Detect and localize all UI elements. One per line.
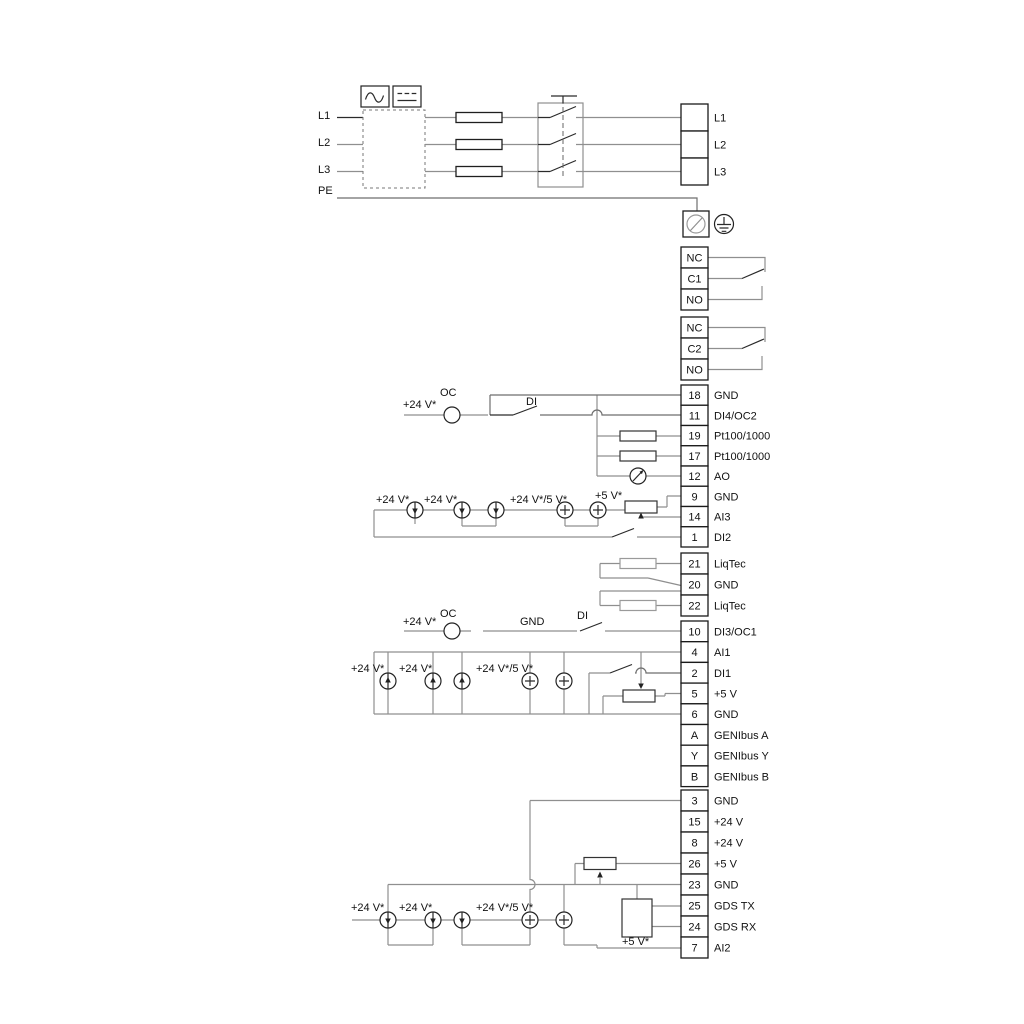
wires-to-mains-terminals <box>576 118 681 172</box>
wire-pe <box>337 198 697 211</box>
terminal-pin: NO <box>686 365 703 377</box>
analog-meter-icon <box>630 468 646 484</box>
terminal-label: +5 V <box>714 859 738 871</box>
terminal-label: +5 V <box>714 688 738 700</box>
terminal-pin: NC <box>687 253 703 265</box>
terminal-label: DI4/OC2 <box>714 410 757 422</box>
di4-oc2-circuit <box>404 395 681 484</box>
power-line-label-l2: L2 <box>318 138 330 149</box>
terminal-label: Pt100/1000 <box>714 431 770 443</box>
terminal-pin: 25 <box>688 901 700 913</box>
terminal-label: GDS TX <box>714 901 755 913</box>
terminal-pin: 18 <box>688 390 700 402</box>
di1-switch-contact <box>610 665 632 674</box>
main-switch-icon <box>538 96 583 187</box>
relay1-contact <box>708 258 765 300</box>
terminal-label: AI3 <box>714 512 731 524</box>
di-switch-contact <box>580 623 602 632</box>
wire-l2-l3-leads <box>337 145 363 172</box>
supply-label: +24 V* <box>351 664 384 675</box>
terminal-pin: 11 <box>689 410 700 422</box>
terminal-label: GND <box>714 580 739 592</box>
open-collector-icon <box>444 407 460 423</box>
terminal-L1 <box>681 104 708 131</box>
terminal-pin: 10 <box>688 626 700 638</box>
terminal-label: LiqTec <box>714 601 746 613</box>
terminal-pin: 12 <box>688 471 700 483</box>
terminal-label: GND <box>714 796 739 808</box>
terminal-pin: 26 <box>688 859 700 871</box>
terminal-strip-strip1: 18GND11DI4/OC219Pt100/100017Pt100/100012… <box>681 385 770 547</box>
terminal-strip-liqtec: 21LiqTec20GND22LiqTec <box>681 553 746 616</box>
di-label: DI <box>526 397 537 408</box>
fuse-icon-l1 <box>456 113 502 123</box>
terminal-pin: 3 <box>691 796 697 808</box>
terminal-strip-strip2: 10DI3/OC14AI12DI15+5 V6GNDAGENIbus AYGEN… <box>681 621 769 787</box>
terminal-pin: 5 <box>691 688 697 700</box>
pe-earth-symbols <box>683 211 734 237</box>
supply-label: +24 V* <box>403 617 436 628</box>
terminal-pin: 8 <box>691 838 697 850</box>
fuse-icon-l3 <box>456 167 502 177</box>
diagram-canvas: L1L2L3NCC1NONCC2NO18GND11DI4/OC219Pt100/… <box>0 0 1024 1024</box>
terminal-strip-relay2: NCC2NO <box>681 317 708 380</box>
terminal-label: GND <box>714 880 739 892</box>
supply-label: +24 V* <box>376 495 409 506</box>
terminal-pin: C2 <box>687 344 701 356</box>
terminal-pin: 23 <box>688 880 700 892</box>
ai1-di1-circuit <box>374 652 681 714</box>
terminal-label: GENIbus Y <box>714 751 769 763</box>
terminal-pin: NO <box>686 295 703 307</box>
di2-switch-contact <box>612 529 634 538</box>
potentiometer-wiper-arrow <box>638 684 644 690</box>
terminal-label: DI1 <box>714 668 731 680</box>
oc-label: OC <box>440 388 457 399</box>
terminal-strip-mains-out: L1L2L3 <box>681 104 726 185</box>
supply-label: +5 V* <box>595 491 622 502</box>
fuse-icon-l2 <box>456 140 502 150</box>
terminal-label: GND <box>714 709 739 721</box>
terminal-label: DI3/OC1 <box>714 626 757 638</box>
terminal-pin: 7 <box>691 943 697 955</box>
open-collector-icon <box>444 623 460 639</box>
relay2-contact <box>708 328 765 370</box>
terminal-label: L2 <box>714 140 726 152</box>
liqtec-circuit <box>600 559 681 611</box>
current-source-icon <box>380 912 470 928</box>
terminal-pin: 15 <box>688 817 700 829</box>
gds-sensor-box <box>622 899 652 937</box>
terminal-pin: 24 <box>688 922 700 934</box>
terminal-label: GND <box>714 390 739 402</box>
terminal-strip-strip3: 3GND15+24 V8+24 V26+5 V23GND25GDS TX24GD… <box>681 790 757 958</box>
terminal-pin: A <box>691 730 699 742</box>
voltage-source-icon <box>522 673 572 689</box>
terminal-pin: NC <box>687 323 703 335</box>
terminal-pin: 9 <box>691 491 697 503</box>
wiring-diagram: L1L2L3NCC1NONCC2NO18GND11DI4/OC219Pt100/… <box>0 0 1024 1024</box>
terminal-strip-relay1: NCC1NO <box>681 247 708 310</box>
current-source-icon <box>380 673 470 689</box>
terminal-label: L1 <box>714 113 726 125</box>
supply-label: +24 V* <box>399 664 432 675</box>
terminal-L2 <box>681 131 708 158</box>
terminal-pin: C1 <box>687 274 701 286</box>
supply-label: +24 V* <box>399 903 432 914</box>
potentiometer-5v <box>584 858 616 870</box>
terminal-label: +24 V <box>714 838 744 850</box>
terminal-pin: 6 <box>691 709 697 721</box>
terminal-L3 <box>681 158 708 185</box>
terminal-pin: 21 <box>688 559 700 571</box>
supply-label: +24 V*/5 V* <box>476 664 533 675</box>
terminal-pin: B <box>691 771 698 783</box>
terminal-pin: 14 <box>688 512 700 524</box>
potentiometer-ai1 <box>623 690 655 702</box>
di-label: DI <box>577 611 588 622</box>
terminal-pin: Y <box>691 751 699 763</box>
resistor-liqtec-1 <box>620 559 656 569</box>
resistor-liqtec-2 <box>620 601 656 611</box>
terminal-pin: 20 <box>688 580 700 592</box>
terminal-pin: 2 <box>691 668 697 680</box>
terminal-pin: 4 <box>691 647 697 659</box>
terminal-label: L3 <box>714 167 726 179</box>
supply-label: +24 V* <box>424 495 457 506</box>
supply-label: +5 V* <box>622 937 649 948</box>
supply-label: +24 V*/5 V* <box>510 495 567 506</box>
terminal-label: AI1 <box>714 647 731 659</box>
terminal-label: AO <box>714 471 730 483</box>
terminal-label: DI2 <box>714 532 731 544</box>
power-input-section <box>337 86 697 211</box>
power-line-label-l1: L1 <box>318 111 330 122</box>
terminal-label: Pt100/1000 <box>714 451 770 463</box>
terminal-pin: 17 <box>688 451 700 463</box>
supply-label: +24 V*/5 V* <box>476 903 533 914</box>
relay2-switch-contact <box>742 339 764 349</box>
supply-label: +24 V* <box>351 903 384 914</box>
resistor-pt100-1 <box>620 431 656 441</box>
terminal-label: GDS RX <box>714 922 757 934</box>
resistor-pt100-2 <box>620 451 656 461</box>
terminal-label: GENIbus B <box>714 771 769 783</box>
power-line-label-pe: PE <box>318 186 333 197</box>
protective-earth-icon <box>715 215 734 234</box>
potentiometer-wiper-arrow <box>597 872 603 878</box>
terminal-label: GENIbus A <box>714 730 769 742</box>
terminal-pin: 22 <box>688 601 700 613</box>
emc-filter-box <box>363 110 425 188</box>
terminal-label: AI2 <box>714 943 731 955</box>
dc-symbol-icon <box>393 86 421 107</box>
terminal-label: +24 V <box>714 817 744 829</box>
oc-label: OC <box>440 609 457 620</box>
terminal-pin: 19 <box>688 431 700 443</box>
terminal-label: LiqTec <box>714 559 746 571</box>
ac-symbol-icon <box>361 86 389 107</box>
potentiometer-ai3 <box>625 501 657 513</box>
supply-label: +24 V* <box>403 400 436 411</box>
terminal-label: GND <box>714 491 739 503</box>
gnd-label: GND <box>520 617 544 628</box>
power-line-label-l3: L3 <box>318 165 330 176</box>
relay1-switch-contact <box>742 269 764 279</box>
terminal-pin: 1 <box>691 532 697 544</box>
